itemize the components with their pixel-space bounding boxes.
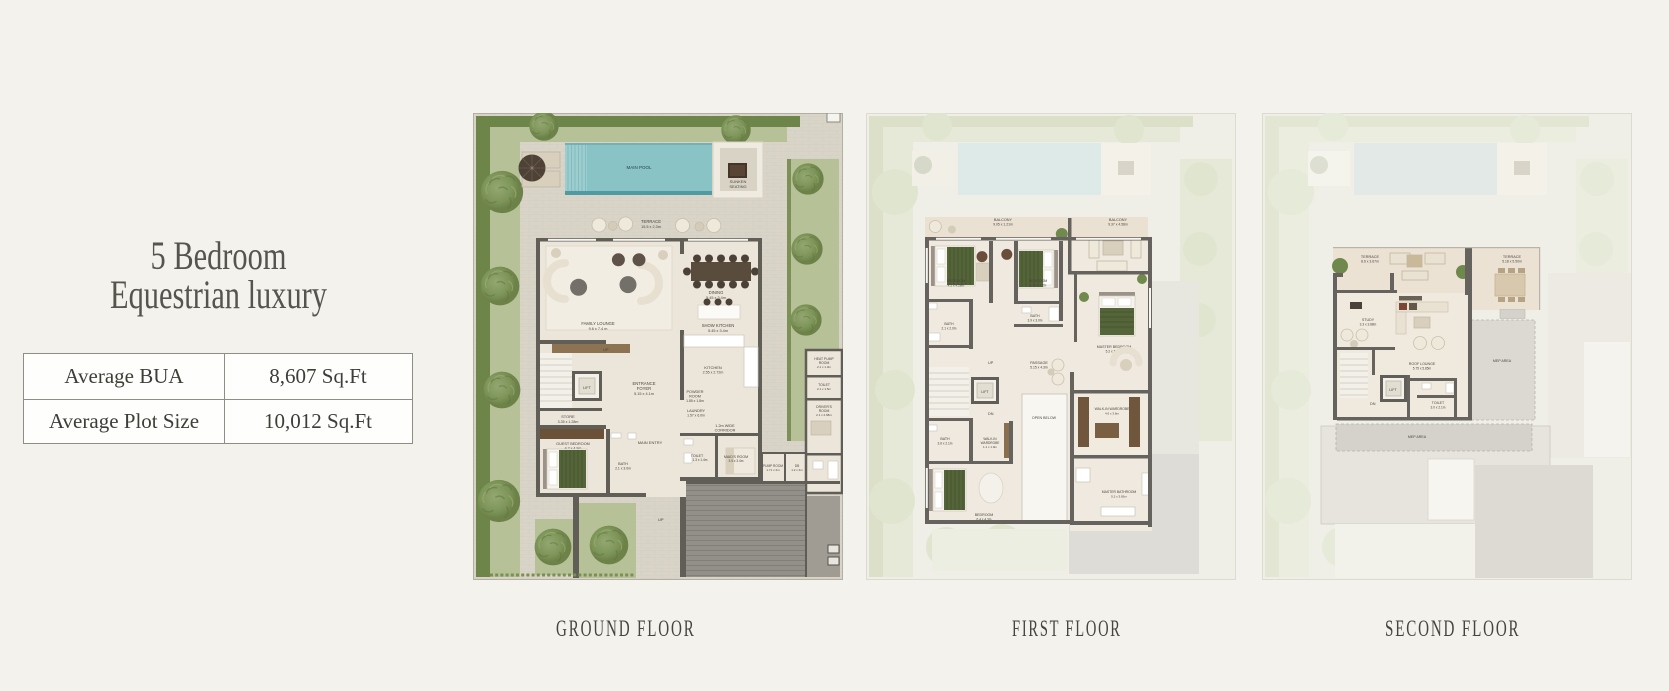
svg-text:TERRACE: TERRACE	[1503, 255, 1522, 259]
svg-text:1.2m WIDE: 1.2m WIDE	[715, 424, 735, 428]
svg-text:DN: DN	[1370, 402, 1376, 406]
svg-text:MEP AREA: MEP AREA	[1408, 435, 1427, 439]
svg-text:1.71 x 4m: 1.71 x 4m	[766, 468, 780, 472]
svg-text:WALK-IN WARDROBE: WALK-IN WARDROBE	[1095, 407, 1131, 411]
svg-text:3.3 x 3.88m: 3.3 x 3.88m	[1360, 323, 1377, 327]
svg-text:MASTER BATHROOM: MASTER BATHROOM	[1102, 490, 1137, 494]
svg-text:STORE: STORE	[561, 414, 575, 419]
svg-text:BEDROOM: BEDROOM	[947, 279, 966, 283]
svg-text:STUDY: STUDY	[1362, 318, 1375, 322]
svg-text:8.6 x 3.67m: 8.6 x 3.67m	[1361, 260, 1379, 264]
svg-text:POWDER: POWDER	[686, 390, 703, 394]
svg-text:4.2 x 4.28m: 4.2 x 4.28m	[948, 284, 965, 288]
svg-text:3.5 x 3.4m: 3.5 x 3.4m	[729, 459, 744, 463]
svg-text:BATH: BATH	[940, 437, 950, 441]
svg-text:BEDROOM: BEDROOM	[975, 513, 994, 517]
svg-text:2.1 x 1.5m: 2.1 x 1.5m	[817, 387, 832, 391]
svg-text:5.45 x 3.4m: 5.45 x 3.4m	[708, 329, 728, 333]
svg-text:1.1 x 1.9m: 1.1 x 1.9m	[983, 445, 998, 449]
svg-text:BEDROOM: BEDROOM	[1029, 279, 1048, 283]
svg-text:ROOF LOUNGE: ROOF LOUNGE	[1409, 362, 1436, 366]
svg-text:CORRIDOR: CORRIDOR	[715, 429, 736, 433]
svg-text:DINING: DINING	[709, 290, 724, 295]
svg-text:GUEST BEDROOM: GUEST BEDROOM	[556, 442, 590, 446]
svg-text:3.35 x 1.28m: 3.35 x 1.28m	[558, 420, 579, 424]
svg-text:1.85 x 1.8m: 1.85 x 1.8m	[686, 399, 704, 403]
svg-text:5.18 x 5.50m: 5.18 x 5.50m	[1502, 260, 1522, 264]
svg-text:SEATING: SEATING	[729, 184, 746, 189]
svg-text:BALCONY: BALCONY	[994, 218, 1013, 222]
svg-text:UP: UP	[988, 361, 994, 365]
svg-text:9.05 x 1.21m: 9.05 x 1.21m	[993, 223, 1013, 227]
svg-text:BATH: BATH	[1030, 314, 1040, 318]
svg-text:UP: UP	[658, 517, 664, 522]
svg-text:BALCONY: BALCONY	[1109, 218, 1128, 222]
svg-text:DN: DN	[988, 412, 994, 416]
svg-text:LIFT: LIFT	[981, 390, 989, 394]
svg-text:3.9 x 3.0m: 3.9 x 3.0m	[1028, 319, 1043, 323]
svg-text:1.57 x 6.0m: 1.57 x 6.0m	[687, 414, 705, 418]
svg-text:LIFT: LIFT	[1389, 388, 1397, 392]
svg-text:2.1 x 1.3m: 2.1 x 1.3m	[817, 365, 832, 369]
svg-text:2.1 x 3.0m: 2.1 x 3.0m	[615, 467, 631, 471]
svg-text:SHOW KITCHEN: SHOW KITCHEN	[702, 323, 735, 328]
svg-text:TOILET: TOILET	[1432, 401, 1445, 405]
svg-text:BATH: BATH	[618, 462, 628, 466]
svg-text:LIFT: LIFT	[583, 386, 591, 390]
svg-text:KITCHEN: KITCHEN	[704, 365, 722, 370]
svg-text:TERRACE: TERRACE	[641, 219, 661, 224]
svg-text:OPEN BELOW: OPEN BELOW	[1032, 416, 1057, 420]
svg-text:TERRACE: TERRACE	[1361, 255, 1380, 259]
svg-text:ROOM: ROOM	[689, 395, 701, 399]
svg-text:BATH: BATH	[944, 322, 954, 326]
svg-text:5.75 x 5.85m: 5.75 x 5.85m	[1413, 367, 1432, 371]
svg-text:9.37 x 4.58m: 9.37 x 4.58m	[1108, 223, 1128, 227]
svg-text:FAMILY LOUNGE: FAMILY LOUNGE	[581, 321, 615, 326]
svg-text:MAIN ENTRY: MAIN ENTRY	[638, 440, 663, 445]
svg-text:MEP AREA: MEP AREA	[1493, 359, 1512, 363]
svg-text:2.1 x 2.0m: 2.1 x 2.0m	[942, 327, 957, 331]
svg-text:4.6 x 3.6m: 4.6 x 3.6m	[1105, 412, 1120, 416]
svg-text:UP: UP	[603, 347, 609, 352]
svg-text:5.2 x 3.65m: 5.2 x 3.65m	[1111, 495, 1127, 499]
svg-text:2.55 x 2.72m: 2.55 x 2.72m	[703, 371, 724, 375]
svg-text:5.15 x 4.3m: 5.15 x 4.3m	[1030, 366, 1048, 370]
svg-text:3.0 x 2.1m: 3.0 x 2.1m	[1431, 406, 1446, 410]
svg-text:FOYER: FOYER	[637, 386, 651, 391]
svg-text:2.1 x 2.68m: 2.1 x 2.68m	[816, 413, 832, 417]
svg-text:MAIN POOL: MAIN POOL	[626, 165, 652, 170]
svg-text:5.75 x 3.2m: 5.75 x 3.2m	[1030, 284, 1047, 288]
svg-text:PASSAGE: PASSAGE	[1030, 361, 1048, 365]
svg-text:3.6 x 2.1m: 3.6 x 2.1m	[938, 442, 953, 446]
svg-text:15.5 x 2.3m: 15.5 x 2.3m	[641, 225, 661, 229]
svg-text:1.2 x 4m: 1.2 x 4m	[791, 468, 803, 472]
svg-text:9.6 x 7.4 m: 9.6 x 7.4 m	[589, 327, 608, 331]
svg-text:1.3 x 1.4m: 1.3 x 1.4m	[693, 458, 708, 462]
svg-text:5.15 x 4.1m: 5.15 x 4.1m	[634, 392, 654, 396]
svg-text:LAUNDRY: LAUNDRY	[687, 409, 706, 413]
